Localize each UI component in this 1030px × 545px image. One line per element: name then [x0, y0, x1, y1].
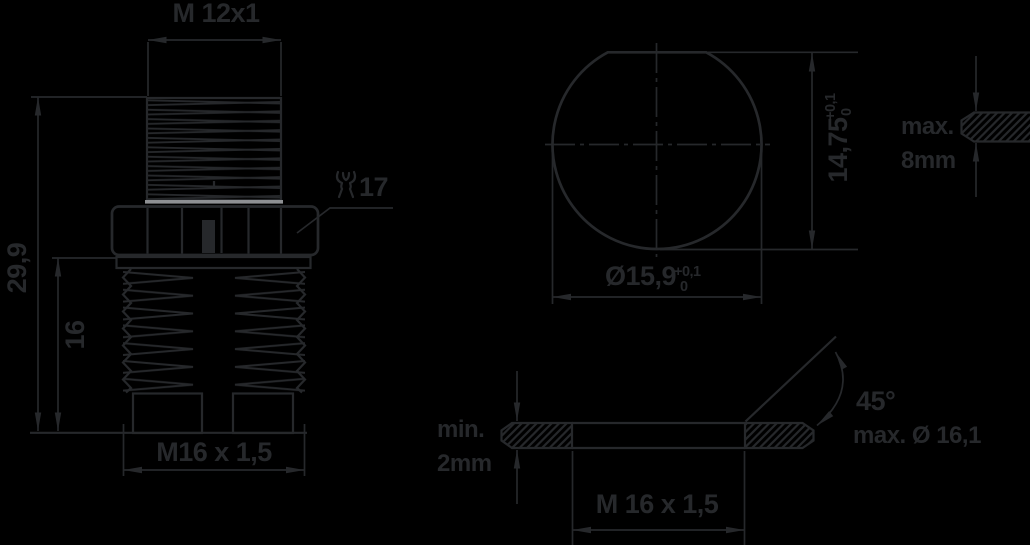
min-label: min. [437, 416, 484, 443]
wrench-size-label: 17 [359, 172, 388, 202]
flat-height-tolerance-lower: 0 [839, 108, 855, 116]
m16-thread-left [123, 269, 201, 393]
diameter-tolerance-upper: +0,1 [674, 264, 701, 280]
overall-height-label: 29,9 [2, 242, 32, 293]
chamfer-max-diameter-label: max. Ø 16,1 [853, 422, 981, 449]
wrench-icon [337, 172, 355, 197]
thread-length-label: 16 [60, 320, 90, 350]
hole-diameter-label: Ø15,9 [605, 261, 677, 291]
min-thickness-label: 2mm [437, 450, 492, 477]
seal-ring [145, 200, 283, 204]
m16-thread-label: M16 x 1,5 [156, 437, 272, 467]
m12-thread-label: M 12x1 [172, 0, 260, 28]
technical-drawing-canvas: M 12x1 29,9 [0, 0, 1030, 545]
panel-section-left [502, 423, 573, 448]
mounting-hole-section: 45° max. Ø 16,1 min. 2mm M 16 x 1,5 [437, 337, 981, 545]
hex-center-slot [202, 220, 215, 253]
panel-hatched-section [962, 113, 1030, 142]
panel-thickness-label: 8mm [901, 147, 956, 174]
chamfer-angle-arc [817, 352, 843, 426]
chamfer-angle-label: 45° [856, 386, 895, 416]
flange-plate [117, 257, 311, 268]
connector-dimension-drawing: M 12x1 29,9 [0, 0, 1030, 545]
rear-body-right [233, 394, 293, 434]
flat-height-label: 14,75 [823, 117, 853, 183]
rear-body-left [133, 394, 202, 434]
panel-max-label: max. [901, 113, 954, 140]
front-view: M 12x1 29,9 [2, 0, 393, 476]
panel-cross-section: max. 8mm [901, 56, 1030, 197]
m16-thread-right [227, 269, 305, 393]
hole-front-view: Ø15,9 +0,1 0 14,75 +0,1 0 [545, 43, 858, 304]
chamfer-line [746, 337, 837, 422]
diameter-tolerance-lower: 0 [680, 279, 688, 295]
panel-section-right [745, 423, 814, 448]
flat-height-tolerance-upper: +0,1 [823, 93, 839, 120]
hole-thread-label: M 16 x 1,5 [596, 489, 719, 519]
